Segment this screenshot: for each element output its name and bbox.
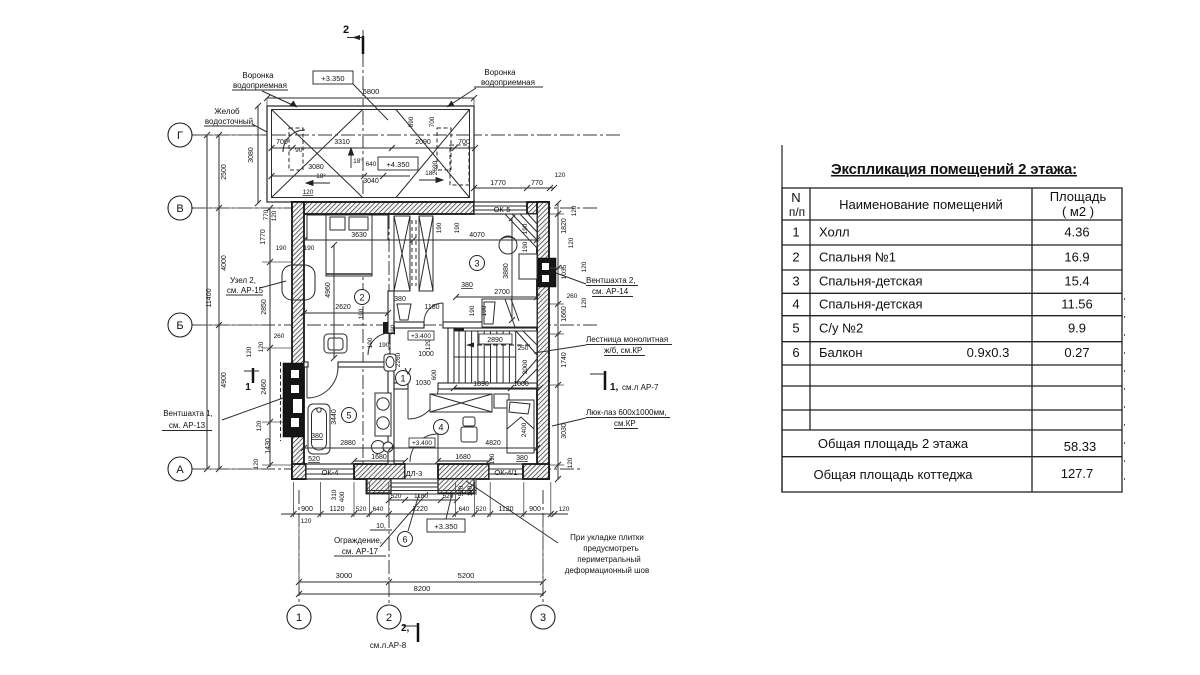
svg-text:120: 120 <box>303 189 314 196</box>
svg-text:700: 700 <box>429 116 436 127</box>
svg-text:2700: 2700 <box>494 289 510 296</box>
svg-text:120: 120 <box>571 205 578 216</box>
svg-text:см. АР-15: см. АР-15 <box>227 286 264 295</box>
svg-text:600: 600 <box>431 369 438 380</box>
svg-text:1030: 1030 <box>415 380 431 387</box>
svg-text:190: 190 <box>390 324 397 335</box>
svg-text:520: 520 <box>308 456 320 463</box>
svg-text:58.33: 58.33 <box>1064 439 1097 454</box>
svg-text:В: В <box>176 203 183 215</box>
svg-text:310: 310 <box>331 489 338 500</box>
svg-text:120: 120 <box>246 346 253 357</box>
svg-text:Вентшахта 2,: Вентшахта 2, <box>586 276 636 285</box>
svg-text:120: 120 <box>581 297 588 308</box>
svg-text:1430: 1430 <box>265 438 272 454</box>
svg-text:Воронка: Воронка <box>484 68 516 77</box>
svg-text:16.9: 16.9 <box>1064 250 1089 265</box>
svg-text:1: 1 <box>792 225 799 240</box>
svg-text:Спальня-детская: Спальня-детская <box>819 274 923 289</box>
svg-text:1660: 1660 <box>561 306 568 322</box>
svg-text:3080: 3080 <box>308 164 324 171</box>
svg-text:1000: 1000 <box>513 381 529 388</box>
svg-text:120: 120 <box>253 458 260 469</box>
svg-text:6800: 6800 <box>363 87 380 96</box>
svg-text:Б: Б <box>176 320 183 332</box>
svg-text:ОК-4/1: ОК-4/1 <box>494 468 517 477</box>
svg-text:190: 190 <box>358 308 365 319</box>
svg-text:1: 1 <box>245 382 251 393</box>
svg-text:Люк-лаз 600х1000мм,: Люк-лаз 600х1000мм, <box>586 408 667 417</box>
svg-text:периметральный: периметральный <box>577 555 640 564</box>
svg-text:1180: 1180 <box>424 304 439 311</box>
svg-text:Вентшахта 1,: Вентшахта 1, <box>163 409 213 418</box>
svg-text:640: 640 <box>459 506 470 513</box>
svg-text:3: 3 <box>792 274 799 289</box>
svg-text:Общая площадь 2 этажа: Общая площадь 2 этажа <box>818 436 969 451</box>
svg-text:2: 2 <box>792 250 799 265</box>
svg-text:3080: 3080 <box>248 147 255 163</box>
svg-text:1680: 1680 <box>455 454 471 461</box>
svg-text:260: 260 <box>567 293 578 300</box>
svg-text:Балкон: Балкон <box>819 345 863 360</box>
svg-text:890: 890 <box>408 116 415 127</box>
svg-text:120: 120 <box>567 457 574 468</box>
svg-text:см. АР-14: см. АР-14 <box>592 287 629 296</box>
svg-text:900: 900 <box>301 506 313 513</box>
svg-text:Спальня-детская: Спальня-детская <box>819 297 923 312</box>
svg-text:Лестница монолитная: Лестница монолитная <box>586 335 668 344</box>
svg-text:4000: 4000 <box>221 255 228 271</box>
svg-text:2,: 2, <box>401 623 410 634</box>
svg-text:700: 700 <box>276 139 288 146</box>
svg-text:2460: 2460 <box>261 379 268 395</box>
svg-text:см.л АР-7: см.л АР-7 <box>622 383 659 392</box>
svg-text:6: 6 <box>402 535 407 545</box>
svg-text:3: 3 <box>474 259 479 269</box>
svg-text:ж/б, см.КР: ж/б, см.КР <box>604 346 642 355</box>
svg-text:см.КР: см.КР <box>614 419 636 428</box>
svg-text:520: 520 <box>391 493 402 500</box>
svg-text:380: 380 <box>461 282 473 289</box>
svg-text:380: 380 <box>516 455 528 462</box>
svg-text:190: 190 <box>436 222 443 233</box>
svg-text:см. АР-13: см. АР-13 <box>169 421 206 430</box>
svg-text:5: 5 <box>346 411 351 421</box>
svg-text:N: N <box>791 190 800 205</box>
svg-text:120: 120 <box>301 518 312 525</box>
svg-text:+3.400: +3.400 <box>411 333 431 340</box>
svg-text:120: 120 <box>581 261 588 272</box>
svg-text:водосточный: водосточный <box>205 117 253 126</box>
svg-text:ДЛ-3: ДЛ-3 <box>406 469 423 478</box>
svg-text:ОК-4: ОК-4 <box>322 468 339 477</box>
svg-text:4.36: 4.36 <box>1064 225 1089 240</box>
svg-text:0.27: 0.27 <box>1064 345 1089 360</box>
svg-text:4: 4 <box>438 423 443 433</box>
svg-text:Общая площадь коттеджа: Общая площадь коттеджа <box>813 467 973 482</box>
svg-text:8200: 8200 <box>414 584 431 593</box>
svg-text:2500: 2500 <box>221 164 228 180</box>
svg-text:Ограждение,: Ограждение, <box>334 536 382 545</box>
svg-text:190: 190 <box>522 241 529 252</box>
svg-text:4820: 4820 <box>485 440 501 447</box>
svg-text:Площадь: Площадь <box>1050 189 1107 204</box>
svg-text:3880: 3880 <box>503 263 510 279</box>
svg-text:11400: 11400 <box>206 288 213 307</box>
svg-text:1820: 1820 <box>561 218 568 234</box>
svg-text:2: 2 <box>343 24 349 36</box>
svg-text:1,: 1, <box>610 382 619 393</box>
svg-text:15.4: 15.4 <box>1064 274 1089 289</box>
svg-text:120: 120 <box>555 172 566 179</box>
svg-text:190: 190 <box>489 453 496 464</box>
svg-text:770: 770 <box>263 209 270 220</box>
svg-text:520: 520 <box>458 485 465 496</box>
svg-text:2260: 2260 <box>395 352 402 367</box>
svg-text:10,: 10, <box>376 523 386 530</box>
svg-text:190: 190 <box>467 485 474 496</box>
svg-text:900: 900 <box>529 506 541 513</box>
svg-text:см.л.АР-8: см.л.АР-8 <box>370 641 407 650</box>
svg-text:Спальня №1: Спальня №1 <box>819 250 896 265</box>
svg-text:1740: 1740 <box>561 352 568 368</box>
svg-text:520: 520 <box>476 506 487 513</box>
svg-text:+3.350: +3.350 <box>434 522 457 531</box>
svg-text:Узел 2,: Узел 2, <box>230 276 256 285</box>
svg-text:2690: 2690 <box>432 160 439 175</box>
svg-text:водоприемная: водоприемная <box>481 78 535 87</box>
svg-text:260: 260 <box>274 333 285 340</box>
svg-text:3030: 3030 <box>561 423 568 439</box>
svg-text:0.9х0.3: 0.9х0.3 <box>967 345 1010 360</box>
svg-text:4900: 4900 <box>221 372 228 388</box>
svg-text:2000: 2000 <box>522 359 529 374</box>
svg-text:ОК-5: ОК-5 <box>494 205 511 214</box>
svg-text:18°: 18° <box>353 157 363 165</box>
svg-text:250: 250 <box>518 345 529 352</box>
svg-text:п/п: п/п <box>789 205 805 219</box>
svg-text:Желоб: Желоб <box>214 107 240 116</box>
svg-text:520: 520 <box>356 506 367 513</box>
svg-text:190: 190 <box>522 223 529 234</box>
svg-text:2: 2 <box>359 293 364 303</box>
svg-text:+4.350: +4.350 <box>386 160 409 169</box>
svg-text:120: 120 <box>559 506 570 513</box>
svg-text:Воронка: Воронка <box>242 71 274 80</box>
svg-text:2890: 2890 <box>487 337 503 344</box>
svg-text:2620: 2620 <box>335 304 351 311</box>
svg-text:При укладке плитки: При укладке плитки <box>570 533 644 542</box>
svg-text:4070: 4070 <box>469 232 485 239</box>
svg-text:190: 190 <box>454 222 461 233</box>
svg-text:190: 190 <box>276 245 287 252</box>
svg-text:1000: 1000 <box>418 351 434 358</box>
svg-text:предусмотреть: предусмотреть <box>583 544 639 553</box>
svg-text:6: 6 <box>792 345 799 360</box>
svg-text:1120: 1120 <box>329 506 344 513</box>
svg-text:380: 380 <box>311 433 323 440</box>
svg-text:190: 190 <box>367 337 374 348</box>
svg-text:640: 640 <box>373 506 384 513</box>
svg-text:120: 120 <box>568 237 575 248</box>
svg-text:+3.400: +3.400 <box>412 440 432 447</box>
svg-text:деформационный шов: деформационный шов <box>565 566 649 575</box>
svg-text:90°: 90° <box>295 146 305 154</box>
svg-text:( м2 ): ( м2 ) <box>1062 204 1094 219</box>
svg-text:1770: 1770 <box>260 229 267 245</box>
svg-text:640: 640 <box>366 161 377 168</box>
svg-text:+3.350: +3.350 <box>321 74 344 83</box>
svg-text:3: 3 <box>540 612 546 624</box>
svg-text:380: 380 <box>394 296 406 303</box>
svg-text:2880: 2880 <box>340 440 356 447</box>
svg-text:2: 2 <box>386 612 392 624</box>
svg-text:120: 120 <box>258 341 265 352</box>
svg-text:4: 4 <box>792 297 799 312</box>
svg-text:190: 190 <box>304 245 315 252</box>
svg-text:3630: 3630 <box>351 232 367 239</box>
svg-text:Г: Г <box>177 130 183 142</box>
svg-text:3440: 3440 <box>331 409 338 425</box>
svg-text:Холл: Холл <box>819 225 850 240</box>
svg-text:Наименование помещений: Наименование помещений <box>839 197 1003 212</box>
svg-text:120: 120 <box>271 210 278 221</box>
svg-text:190: 190 <box>481 305 488 316</box>
svg-text:127.7: 127.7 <box>1061 466 1094 481</box>
svg-text:9.9: 9.9 <box>1068 321 1086 336</box>
svg-text:А: А <box>176 464 184 476</box>
svg-text:2400: 2400 <box>521 422 528 437</box>
svg-text:С/у №2: С/у №2 <box>819 321 863 336</box>
svg-text:4960: 4960 <box>325 282 332 298</box>
svg-text:2850: 2850 <box>261 299 268 315</box>
svg-text:см. АР-17: см. АР-17 <box>342 547 379 556</box>
svg-text:11.56: 11.56 <box>1061 297 1093 312</box>
svg-text:1890: 1890 <box>473 381 489 388</box>
svg-text:3000: 3000 <box>336 571 353 580</box>
svg-text:водоприемная: водоприемная <box>233 81 287 90</box>
svg-text:120: 120 <box>256 420 263 431</box>
svg-text:5200: 5200 <box>458 571 475 580</box>
svg-text:5: 5 <box>792 321 799 336</box>
svg-text:2090: 2090 <box>415 139 431 146</box>
svg-text:3310: 3310 <box>334 139 350 146</box>
svg-text:1: 1 <box>400 374 405 384</box>
svg-text:400: 400 <box>339 491 346 502</box>
svg-text:Экспликация помещений 2 этажа:: Экспликация помещений 2 этажа: <box>831 161 1077 178</box>
svg-text:1680: 1680 <box>371 454 387 461</box>
svg-text:1: 1 <box>296 612 302 624</box>
svg-text:770: 770 <box>531 180 543 187</box>
svg-text:700: 700 <box>458 139 470 146</box>
svg-text:190: 190 <box>379 342 390 349</box>
svg-text:3040: 3040 <box>363 178 379 185</box>
svg-text:190: 190 <box>469 305 476 316</box>
svg-text:1770: 1770 <box>490 180 506 187</box>
